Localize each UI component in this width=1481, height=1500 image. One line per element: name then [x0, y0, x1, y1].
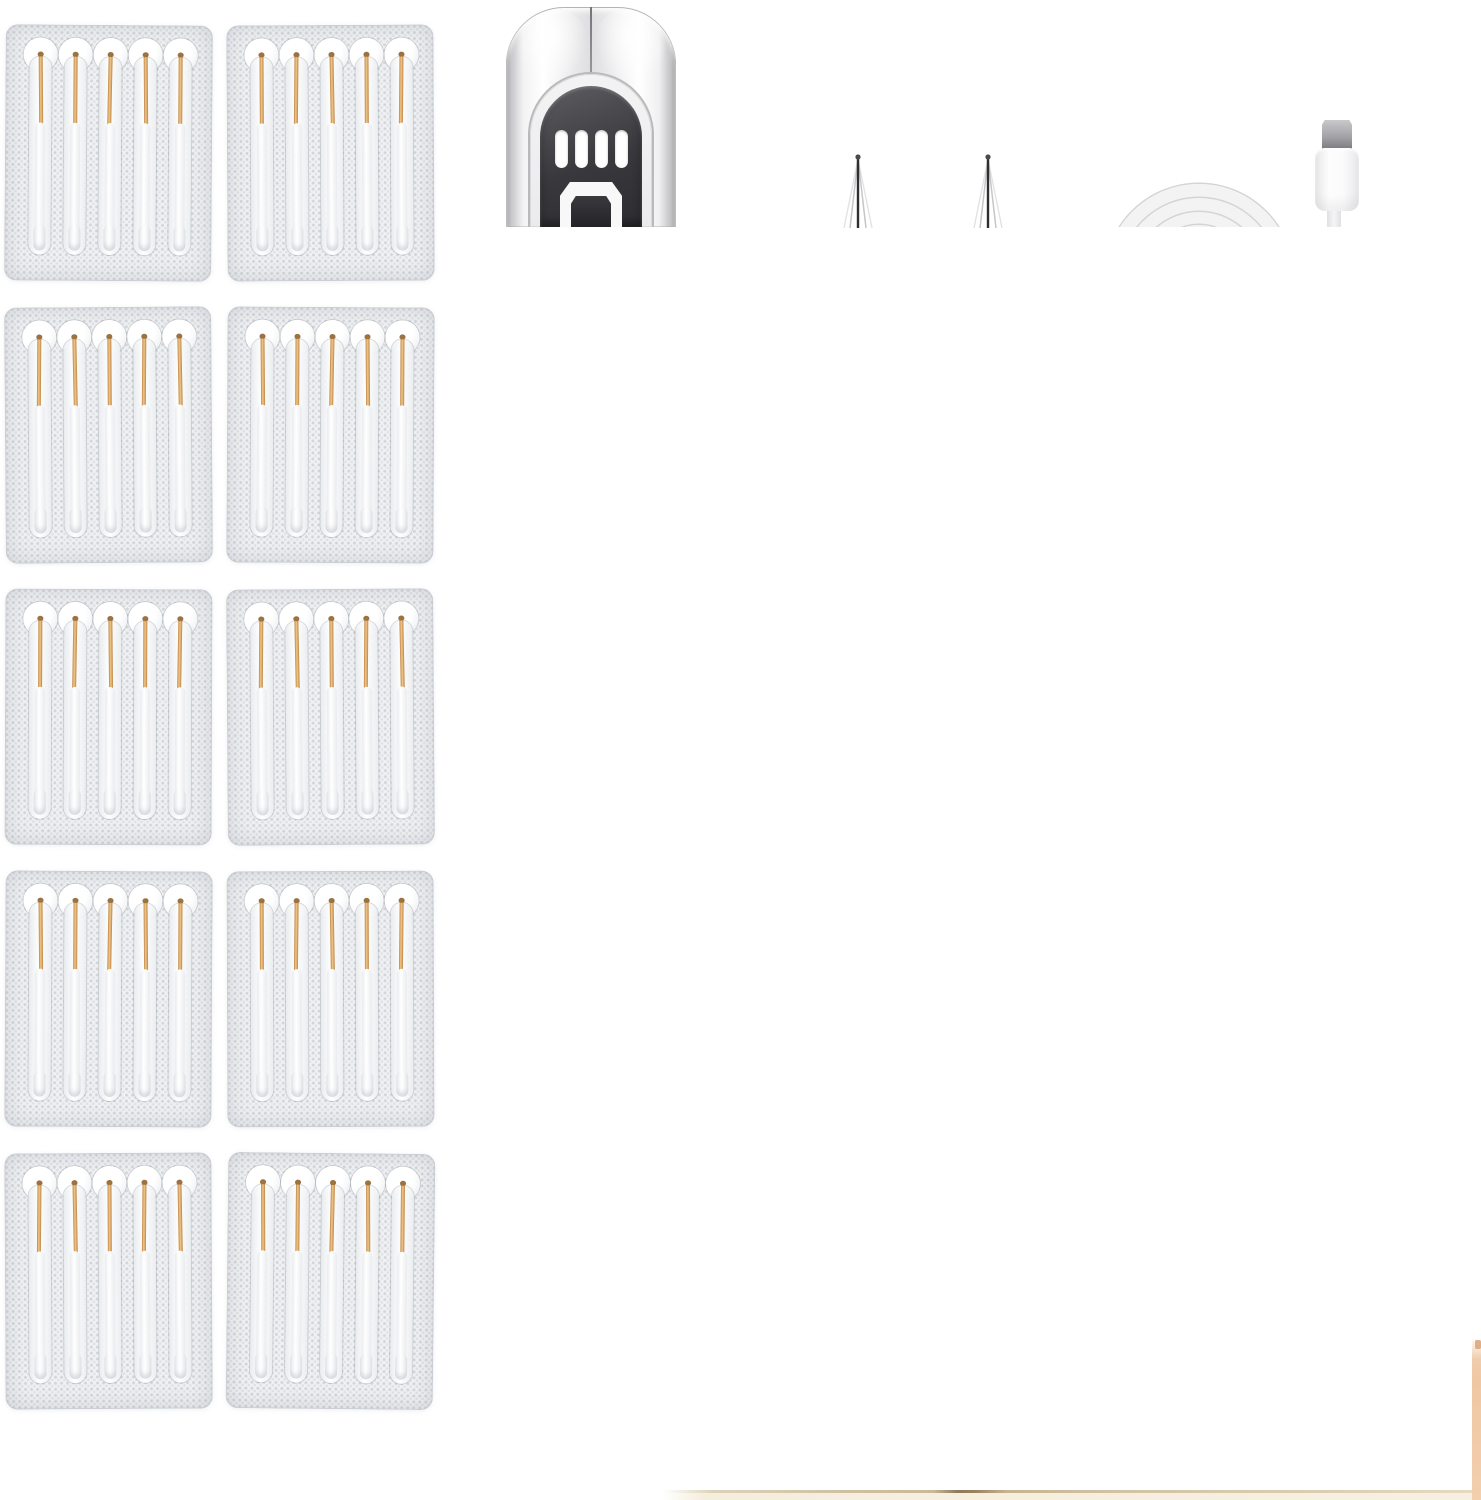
cotton-bud: [255, 507, 267, 533]
swab-shaft: [105, 1251, 116, 1365]
blister-pack: [227, 871, 435, 1128]
cotton-bud: [360, 507, 372, 533]
cotton-swab: [351, 1153, 384, 1409]
cotton-swab: [95, 589, 126, 845]
vent-slot: [615, 130, 628, 168]
swab-shaft: [327, 687, 338, 801]
swab-shaft: [362, 405, 373, 519]
cotton-swab: [247, 871, 278, 1127]
replacement-needle-tip: [841, 152, 875, 228]
gold-needle: [259, 619, 264, 694]
blister-pack: [5, 589, 213, 846]
cotton-bud: [396, 225, 408, 251]
cotton-swab: [352, 871, 383, 1127]
cotton-bud: [325, 507, 337, 533]
cotton-swab: [386, 588, 418, 844]
cotton-bud: [396, 1071, 408, 1097]
cotton-bud: [326, 1071, 338, 1097]
gold-needle: [399, 55, 404, 125]
cotton-bud: [34, 789, 46, 815]
cotton-swab: [129, 307, 161, 563]
swab-shaft: [174, 123, 185, 237]
cotton-bud: [35, 507, 47, 533]
cotton-bud: [104, 789, 116, 815]
gold-needle: [295, 337, 299, 412]
swab-shaft: [327, 405, 338, 519]
cotton-bud: [255, 1352, 267, 1378]
cotton-swab: [281, 25, 312, 281]
swab-shaft: [397, 405, 408, 519]
blister-pack: [4, 1152, 212, 1409]
gold-needle: [400, 337, 404, 412]
cotton-swab: [94, 1153, 125, 1409]
cotton-swab: [59, 1153, 90, 1409]
cotton-bud: [105, 507, 117, 533]
cotton-swab: [164, 1153, 195, 1409]
gold-needle: [366, 337, 371, 407]
gold-needle: [108, 619, 113, 694]
gold-needle: [142, 337, 147, 412]
cotton-swab: [351, 25, 382, 281]
swab-shaft: [397, 969, 407, 1083]
blister-pack: [226, 588, 435, 845]
swab-shaft: [175, 404, 186, 518]
cotton-swab: [351, 307, 382, 563]
cotton-bud: [327, 789, 339, 815]
cotton-swab: [130, 589, 161, 845]
cotton-bud: [174, 1353, 186, 1379]
vent-slot: [595, 130, 608, 168]
blister-pack: [226, 1152, 436, 1410]
cotton-swab: [246, 307, 277, 563]
cotton-swab: [281, 1152, 314, 1408]
device-opening: [560, 182, 622, 227]
gold-needle: [107, 337, 111, 407]
cotton-swab: [316, 589, 348, 845]
cotton-swab: [60, 589, 91, 845]
cotton-bud: [173, 1071, 185, 1097]
needle-tip-graphic: [841, 152, 875, 228]
gold-needle: [107, 1183, 111, 1253]
cotton-bud: [104, 1353, 116, 1379]
swab-shaft: [361, 1251, 372, 1365]
cotton-swab: [24, 871, 55, 1127]
swab-shaft: [35, 405, 46, 519]
swab-shaft: [397, 123, 408, 237]
swab-shaft: [291, 1251, 302, 1365]
swab-shaft: [327, 123, 338, 237]
device-chrome-body: [506, 7, 676, 227]
swab-shaft: [257, 687, 268, 801]
cotton-swab: [94, 307, 126, 563]
swab-shaft: [257, 123, 268, 237]
swab-shaft: [105, 405, 116, 519]
swab-shaft: [292, 123, 303, 237]
cotton-bud: [138, 225, 150, 251]
cotton-bud: [290, 1353, 302, 1379]
swab-shaft: [140, 687, 150, 801]
cotton-bud: [34, 1353, 46, 1379]
cotton-bud: [68, 1071, 80, 1097]
cotton-bud: [256, 225, 268, 251]
swab-shaft: [292, 969, 302, 1083]
cotton-bud: [69, 789, 81, 815]
cotton-swab: [94, 25, 126, 281]
swab-shaft: [105, 969, 116, 1083]
cotton-bud: [326, 225, 338, 251]
cotton-bud: [290, 507, 302, 533]
cotton-swab: [351, 589, 383, 845]
gold-needle: [364, 619, 369, 694]
cotton-swab: [317, 871, 348, 1127]
cotton-swab: [246, 1152, 279, 1408]
replacement-needle-tip: [971, 152, 1005, 228]
cotton-bud: [173, 225, 185, 251]
cotton-swab: [59, 25, 91, 281]
cotton-bud: [174, 789, 186, 815]
swab-shaft: [175, 969, 186, 1083]
gold-needle: [178, 55, 183, 130]
swab-shaft: [104, 123, 115, 237]
swab-shaft: [257, 405, 268, 519]
swab-shaft: [256, 1250, 267, 1364]
usb-connector-metal: [1322, 120, 1352, 149]
cotton-swab: [165, 589, 196, 845]
swab-shaft: [327, 969, 337, 1083]
swab-shaft: [35, 687, 45, 801]
gold-needle: [73, 901, 77, 976]
cotton-bud: [175, 506, 187, 532]
cotton-bud: [292, 789, 304, 815]
device-dark-panel: [540, 86, 642, 227]
swab-shaft: [362, 123, 373, 237]
cotton-bud: [138, 1071, 150, 1097]
vent-slot: [555, 130, 568, 168]
swab-shaft: [397, 686, 408, 800]
cotton-swab: [246, 589, 278, 845]
gold-needle: [178, 901, 182, 976]
swab-shaft: [70, 405, 81, 519]
device-arch: [530, 74, 652, 227]
gold-needle: [37, 1183, 42, 1258]
gold-needle: [399, 901, 404, 971]
cotton-swab: [59, 307, 91, 563]
blister-pack: [4, 24, 213, 281]
cotton-swab: [24, 24, 56, 280]
cotton-swab: [316, 25, 347, 281]
cotton-swab: [164, 25, 196, 281]
gold-needle: [295, 1183, 300, 1258]
cropped-image-right-edge: [1472, 1337, 1481, 1500]
cotton-swab: [246, 25, 277, 281]
gold-needle: [39, 55, 43, 125]
cotton-swab: [164, 306, 196, 562]
cotton-swab: [281, 307, 312, 563]
swab-shaft: [326, 1251, 337, 1365]
cotton-swab: [59, 871, 90, 1127]
cotton-bud: [69, 1353, 81, 1379]
swab-shaft: [35, 1251, 46, 1365]
cotton-swab: [129, 25, 161, 281]
cropped-image-bottom-edge-fill: [663, 1493, 1481, 1500]
cotton-swab: [387, 871, 418, 1127]
cotton-swab: [24, 307, 56, 563]
gold-needle: [39, 901, 44, 971]
cotton-bud: [256, 1071, 268, 1097]
swab-shaft: [70, 687, 80, 801]
cotton-swab: [25, 589, 56, 845]
swab-shaft: [257, 969, 267, 1083]
cotton-swab: [386, 307, 417, 563]
gold-needle: [144, 55, 148, 125]
cotton-bud: [291, 1071, 303, 1097]
swab-shaft: [362, 969, 372, 1083]
cotton-swab: [386, 1154, 419, 1410]
usb-cable-stub: [1327, 211, 1341, 227]
cotton-bud: [70, 507, 82, 533]
blister-pack: [226, 24, 434, 281]
usb-connector-body: [1315, 148, 1359, 211]
device-vent-slots: [540, 130, 642, 168]
cotton-bud: [103, 225, 115, 251]
cotton-swab: [282, 871, 313, 1127]
cotton-swab: [164, 871, 195, 1127]
cotton-swab: [24, 1153, 55, 1409]
usb-cable-coil: [1103, 181, 1295, 227]
swab-shaft: [362, 687, 373, 801]
blister-pack: [4, 870, 212, 1127]
cotton-swab: [129, 1153, 160, 1409]
swab-shaft: [69, 123, 80, 237]
gold-needle: [329, 619, 333, 689]
needle-tip-graphic: [971, 152, 1005, 228]
swab-shaft: [140, 1251, 151, 1365]
gold-needle: [73, 55, 78, 130]
gold-needle: [37, 337, 42, 412]
swab-shaft: [175, 687, 185, 801]
swab-shaft: [140, 969, 151, 1083]
cotton-bud: [257, 789, 269, 815]
swab-shaft: [396, 1252, 407, 1366]
cotton-bud: [360, 1353, 372, 1379]
cotton-bud: [361, 225, 373, 251]
swab-shaft: [105, 687, 115, 801]
gold-needle: [294, 901, 299, 971]
cotton-swab: [94, 871, 125, 1127]
cotton-bud: [291, 225, 303, 251]
cotton-bud: [362, 789, 374, 815]
swab-shaft: [175, 1251, 186, 1365]
cotton-bud: [325, 1353, 337, 1379]
blister-pack: [226, 306, 434, 563]
cotton-swab: [316, 307, 347, 563]
device: [506, 7, 676, 227]
cotton-swab: [316, 1153, 349, 1409]
cotton-bud: [139, 789, 151, 815]
swab-shaft: [139, 123, 150, 237]
gold-needle: [294, 55, 299, 125]
swab-shaft: [70, 969, 81, 1083]
cotton-bud: [140, 507, 152, 533]
gold-needle: [142, 1183, 147, 1258]
cotton-swab: [281, 589, 313, 845]
gold-needle: [144, 901, 149, 971]
cotton-bud: [395, 507, 407, 533]
vent-slot: [575, 130, 588, 168]
gold-needle: [261, 1182, 265, 1252]
cotton-bud: [397, 788, 409, 814]
gold-needle: [400, 1184, 405, 1259]
swab-shaft: [292, 687, 303, 801]
swab-shaft: [34, 122, 45, 236]
cotton-bud: [68, 225, 80, 251]
product-collage: [0, 0, 1481, 1500]
blister-pack: [4, 306, 213, 563]
cotton-swab: [129, 871, 160, 1127]
cotton-bud: [395, 1354, 407, 1380]
swab-shaft: [140, 405, 151, 519]
cotton-bud: [139, 1353, 151, 1379]
device-top-seam: [590, 7, 592, 83]
swab-shaft: [292, 405, 303, 519]
swab-shaft: [35, 969, 46, 1083]
cotton-bud: [103, 1071, 115, 1097]
device-opening-inner: [571, 196, 611, 227]
cotton-bud: [361, 1071, 373, 1097]
cotton-bud: [33, 224, 45, 250]
cotton-swab: [386, 25, 417, 281]
gold-needle: [261, 337, 266, 407]
cotton-bud: [33, 1071, 45, 1097]
gold-needle: [366, 1183, 370, 1253]
swab-shaft: [70, 1251, 81, 1365]
